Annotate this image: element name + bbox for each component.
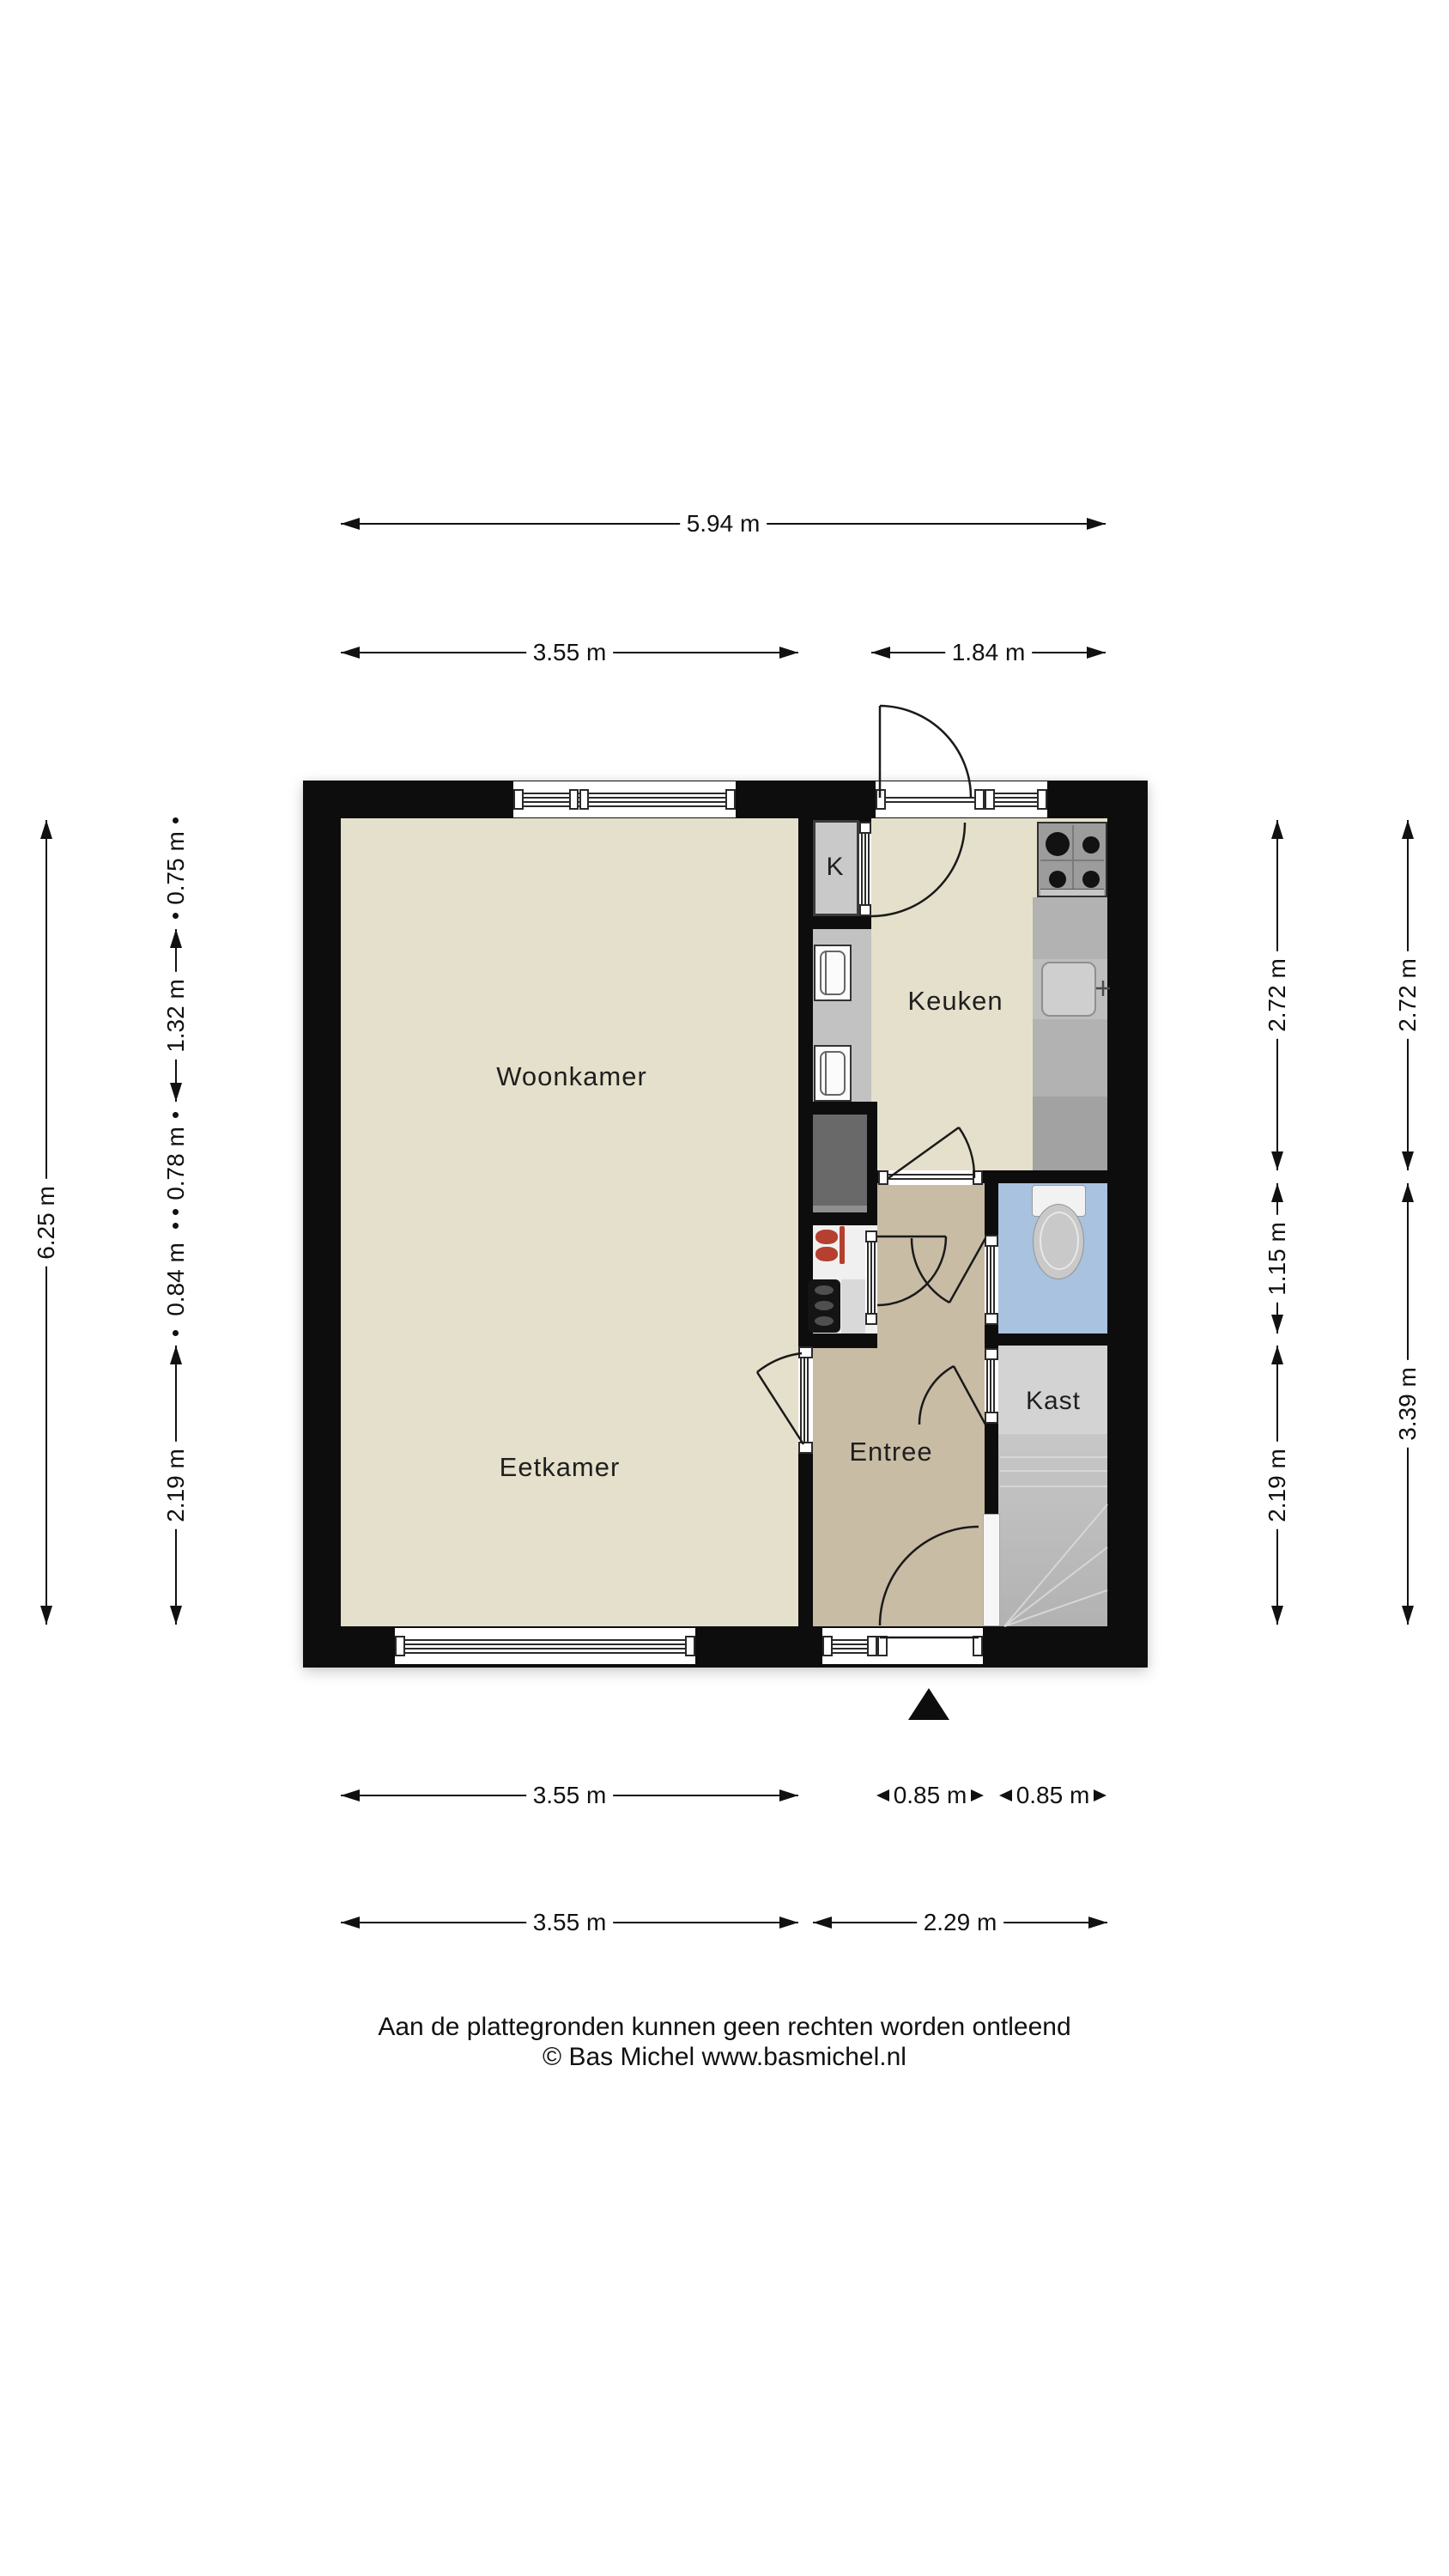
dim-left-total: 6.25 m bbox=[34, 820, 58, 1625]
wall-niche-bottom bbox=[813, 1334, 877, 1348]
door-frame-kast bbox=[985, 1348, 998, 1424]
wall-middle bbox=[798, 818, 813, 1626]
living-dining-floor bbox=[341, 818, 798, 1626]
stairs-floor bbox=[998, 1434, 1107, 1626]
door-opening-back bbox=[876, 781, 985, 817]
dim-right-inner-0: 2.72 m bbox=[1265, 820, 1289, 1170]
boiler-niche-shade bbox=[841, 1279, 865, 1334]
toilet-bowl-icon bbox=[1033, 1204, 1084, 1279]
washer-icon bbox=[814, 945, 852, 1001]
window-eetkamer-bottom bbox=[395, 1628, 695, 1664]
boiler-pipe-icon bbox=[840, 1226, 845, 1264]
heater-icon bbox=[808, 1279, 840, 1333]
dryer-icon bbox=[814, 1045, 852, 1102]
room-label-keuken: Keuken bbox=[907, 986, 1003, 1017]
room-label-eetkamer: Eetkamer bbox=[500, 1452, 621, 1483]
door-frame-niche bbox=[865, 1230, 877, 1325]
dim-bottom1-stairs: 0.85 m bbox=[998, 1783, 1107, 1807]
floorplan-page: Woonkamer Eetkamer Keuken Entree Kast K … bbox=[0, 0, 1449, 2576]
dim-left-seg-2: 0.78 m bbox=[164, 1115, 188, 1212]
dim-top-right: 1.84 m bbox=[871, 641, 1106, 665]
disclaimer-text: Aan de plattegronden kunnen geen rechten… bbox=[0, 2013, 1449, 2042]
door-opening-front bbox=[877, 1628, 983, 1664]
room-label-kast: Kast bbox=[1026, 1387, 1081, 1416]
dim-left-seg-1: 1.32 m bbox=[164, 929, 188, 1102]
sink-icon bbox=[1041, 962, 1096, 1017]
copyright-text: © Bas Michel www.basmichel.nl bbox=[0, 2043, 1449, 2072]
stairs-balustrade bbox=[983, 1514, 1000, 1626]
window-entree-bottom bbox=[822, 1628, 877, 1664]
boiler-icon-2 bbox=[815, 1247, 838, 1261]
dim-top-total: 5.94 m bbox=[341, 512, 1106, 536]
dim-bottom2-right: 2.29 m bbox=[813, 1911, 1107, 1935]
room-label-meterkast: K bbox=[826, 853, 844, 882]
room-label-woonkamer: Woonkamer bbox=[496, 1061, 647, 1092]
entree-floor-upper bbox=[877, 1183, 985, 1348]
dim-bottom2-left: 3.55 m bbox=[341, 1911, 798, 1935]
door-frame-toilet bbox=[985, 1235, 998, 1325]
entrance-arrow-icon bbox=[908, 1688, 949, 1720]
stove-icon bbox=[1037, 822, 1107, 897]
dim-right-inner-1: 1.15 m bbox=[1265, 1183, 1289, 1334]
window-keuken-top bbox=[985, 781, 1047, 817]
dim-bottom1-door: 0.85 m bbox=[877, 1783, 983, 1807]
dim-left-seg-3: 0.84 m bbox=[164, 1225, 188, 1334]
counter-low-section bbox=[1033, 1097, 1107, 1170]
dim-right-inner-2: 2.19 m bbox=[1265, 1346, 1289, 1625]
wall-closet-bottom bbox=[813, 916, 871, 929]
wall-left bbox=[303, 781, 341, 1668]
dim-right-outer-0: 2.72 m bbox=[1396, 820, 1420, 1170]
door-frame-eetkamer bbox=[798, 1346, 813, 1454]
wall-toilet-bottom bbox=[985, 1334, 1107, 1346]
dim-left-seg-0: 0.75 m bbox=[164, 820, 188, 916]
boiler-icon bbox=[815, 1230, 838, 1244]
window-woonkamer-top bbox=[513, 781, 736, 817]
entree-floor-lower bbox=[813, 1348, 985, 1626]
door-frame-keuken-entree bbox=[878, 1170, 983, 1185]
dim-top-left: 3.55 m bbox=[341, 641, 798, 665]
dim-bottom1-left: 3.55 m bbox=[341, 1783, 798, 1807]
counter-top-section bbox=[1033, 897, 1107, 959]
dim-right-outer-1: 3.39 m bbox=[1396, 1183, 1420, 1625]
room-label-entree: Entree bbox=[849, 1437, 932, 1467]
dim-left-seg-4: 2.19 m bbox=[164, 1346, 188, 1625]
duct-block bbox=[813, 1115, 867, 1212]
wall-right bbox=[1107, 781, 1148, 1668]
counter-mid-section bbox=[1033, 1019, 1107, 1097]
door-frame-meterkast bbox=[859, 822, 871, 916]
